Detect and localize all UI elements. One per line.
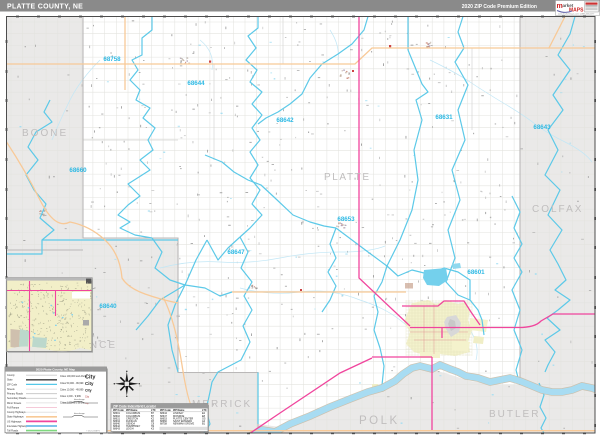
svg-text:Minor Streets: Minor Streets bbox=[7, 402, 22, 405]
svg-text:Toll Roads: Toll Roads bbox=[7, 430, 19, 433]
svg-text:City: City bbox=[85, 402, 88, 405]
svg-text:www.marketmaps.com 1-888-434-: www.marketmaps.com 1-888-434-6277 bbox=[558, 13, 595, 16]
svg-text:68601: 68601 bbox=[467, 269, 485, 276]
svg-text:68660: 68660 bbox=[69, 167, 87, 174]
svg-text:68644: 68644 bbox=[187, 80, 205, 87]
svg-text:State Highways: State Highways bbox=[7, 416, 24, 419]
svg-text:BUTLER: BUTLER bbox=[489, 409, 540, 420]
svg-text:PLATTE: PLATTE bbox=[324, 172, 371, 183]
svg-text:2020 ZIP Code Premium Edition: 2020 ZIP Code Premium Edition bbox=[462, 4, 537, 10]
svg-text:2020 Platte County, NE Map: 2020 Platte County, NE Map bbox=[36, 368, 75, 372]
svg-text:Full Ramps: Full Ramps bbox=[7, 406, 20, 409]
svg-text:Streets: Streets bbox=[7, 388, 15, 391]
svg-text:68631: 68631 bbox=[435, 114, 453, 121]
svg-text:Interstate Highways: Interstate Highways bbox=[7, 425, 29, 428]
svg-text:ZIP Code Index/Grid Locator: ZIP Code Index/Grid Locator bbox=[113, 404, 157, 408]
svg-text:LEIGH: LEIGH bbox=[126, 428, 134, 431]
svg-text:County Highways: County Highways bbox=[7, 411, 26, 414]
svg-text:68643: 68643 bbox=[113, 428, 121, 431]
svg-text:Secondary Roads: Secondary Roads bbox=[7, 397, 27, 400]
svg-text:Cities 10,000 - 49,999: Cities 10,000 - 49,999 bbox=[60, 388, 84, 391]
svg-text:BOONE: BOONE bbox=[22, 128, 68, 139]
svg-text:Cities 100,000 and Above: Cities 100,000 and Above bbox=[60, 375, 88, 378]
svg-text:68647: 68647 bbox=[227, 249, 245, 256]
svg-text:County: County bbox=[7, 374, 15, 377]
svg-text:ZIP Code: ZIP Code bbox=[7, 383, 18, 386]
svg-text:Interchange: Interchange bbox=[74, 398, 85, 401]
svg-text:MAPS: MAPS bbox=[569, 8, 584, 14]
svg-text:POLK: POLK bbox=[359, 415, 400, 427]
svg-text:COLFAX: COLFAX bbox=[532, 204, 583, 215]
svg-text:Cities 1,000 - 9,999: Cities 1,000 - 9,999 bbox=[60, 395, 81, 398]
svg-text:68642: 68642 bbox=[276, 117, 294, 124]
svg-text:Interchange: Interchange bbox=[74, 412, 85, 415]
svg-text:68758: 68758 bbox=[103, 56, 121, 63]
svg-text:City: City bbox=[85, 389, 92, 393]
svg-text:City: City bbox=[85, 381, 94, 386]
svg-text:68653: 68653 bbox=[337, 216, 355, 223]
svg-text:Primary Roads: Primary Roads bbox=[7, 393, 24, 396]
svg-text:NEWMAN GROVE: NEWMAN GROVE bbox=[173, 422, 194, 425]
svg-text:68643: 68643 bbox=[533, 124, 551, 131]
svg-text:68758: 68758 bbox=[160, 422, 168, 425]
svg-text:City: City bbox=[85, 374, 96, 380]
svg-text:PLATTE COUNTY, NE: PLATTE COUNTY, NE bbox=[7, 4, 83, 11]
svg-text:Cities 50,000 - 99,999: Cities 50,000 - 99,999 bbox=[60, 382, 84, 385]
svg-text:© MarketMAPS: © MarketMAPS bbox=[86, 430, 100, 433]
svg-text:US Highways: US Highways bbox=[7, 420, 22, 423]
svg-text:State: State bbox=[7, 379, 13, 382]
svg-text:68640: 68640 bbox=[99, 303, 117, 310]
